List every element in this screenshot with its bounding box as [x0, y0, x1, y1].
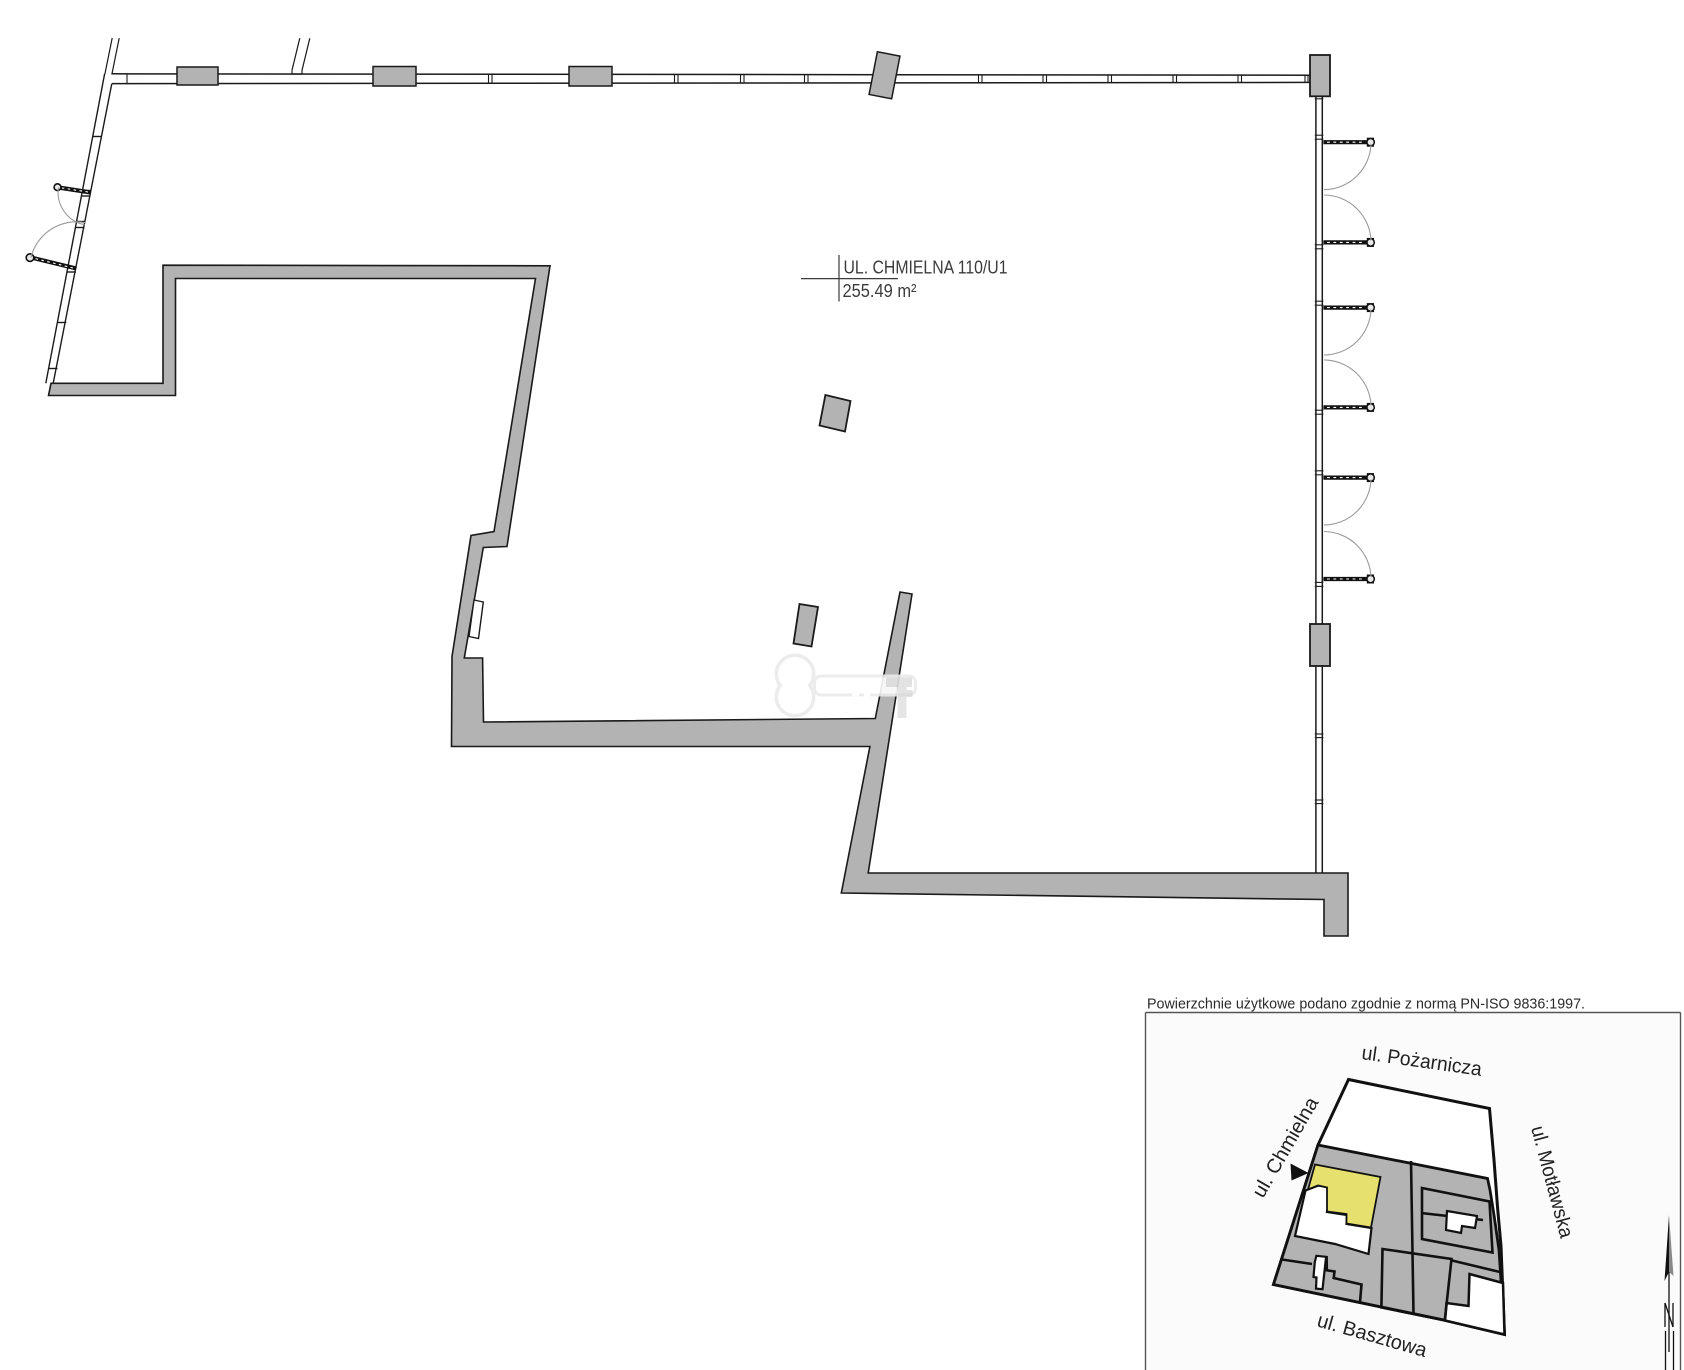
svg-text:Powierzchnie użytkowe podano z: Powierzchnie użytkowe podano zgodnie z n…: [1147, 997, 1585, 1013]
svg-text:255.49 m²: 255.49 m²: [843, 280, 917, 301]
svg-text:UL. CHMIELNA 110/U1: UL. CHMIELNA 110/U1: [844, 257, 1008, 278]
